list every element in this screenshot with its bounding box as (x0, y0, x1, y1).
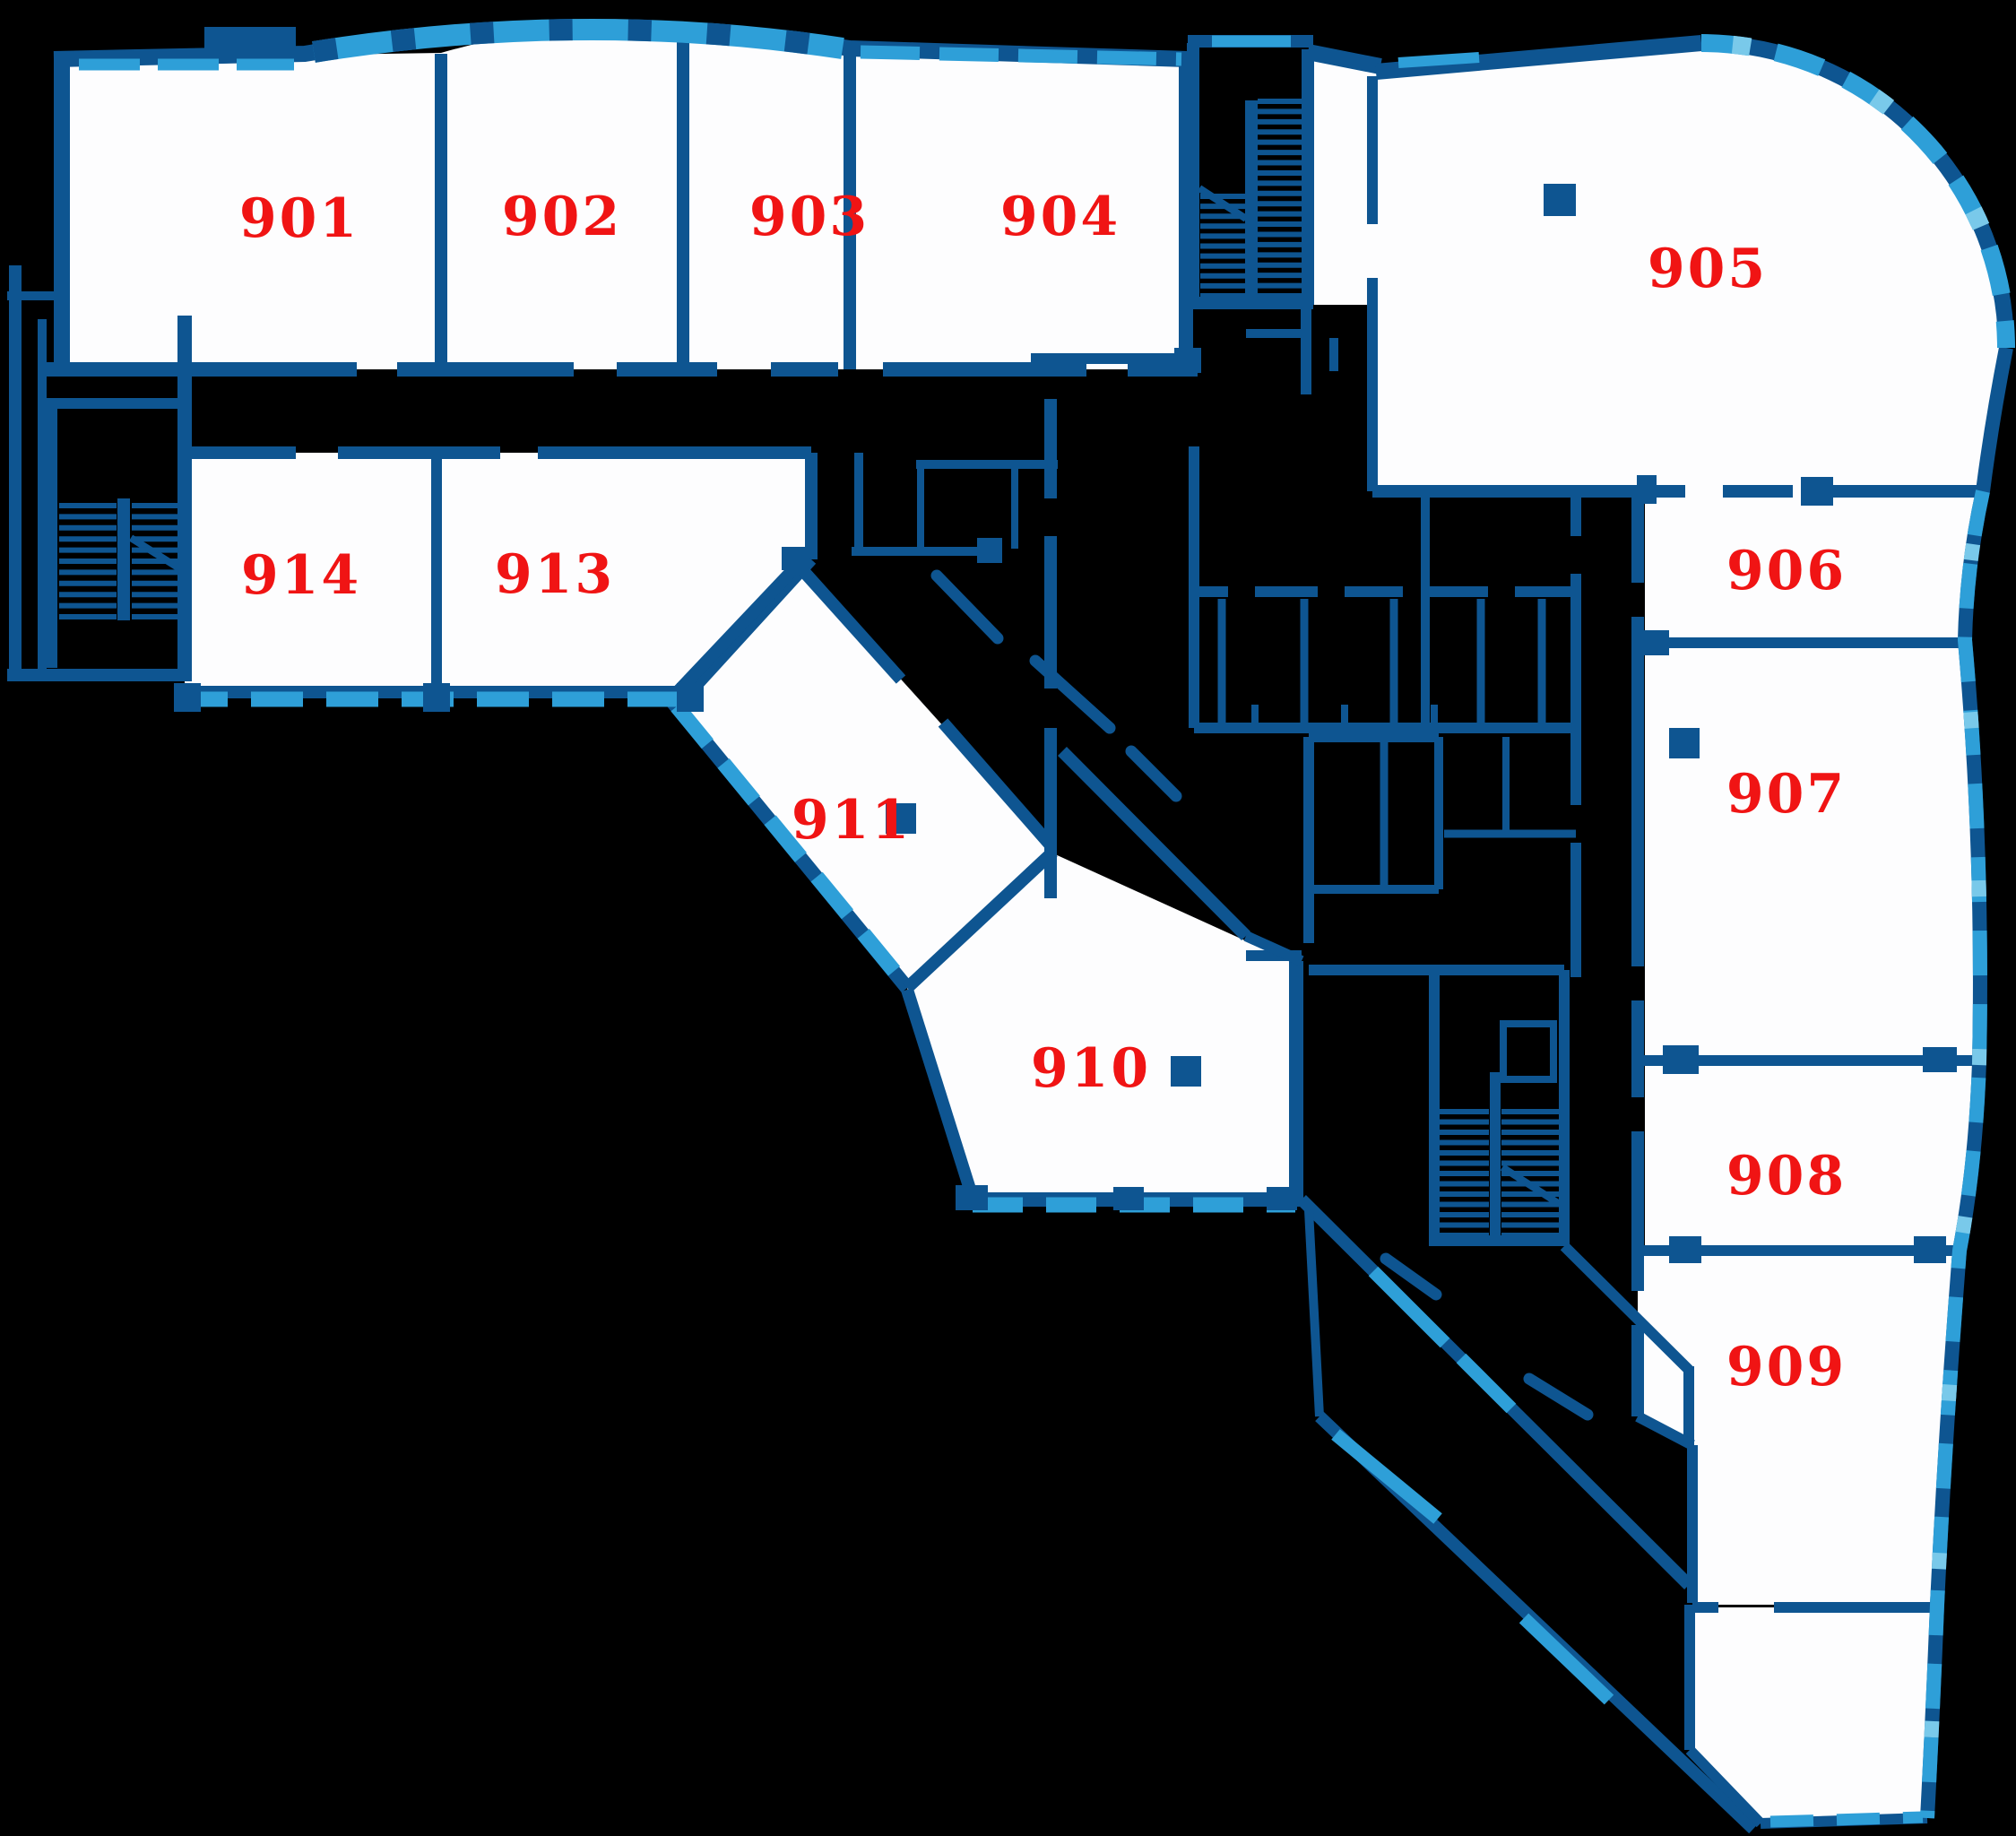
door-swing (1035, 661, 1110, 728)
room-905-label: 905 (1648, 238, 1768, 300)
room-902-label: 902 (502, 186, 622, 248)
room-908-label: 908 (1726, 1145, 1847, 1208)
floor-plan-svg: 901 902 903 904 905 906 907 908 909 910 … (0, 0, 2016, 1836)
parapet (204, 27, 296, 54)
room-907-label: 907 (1726, 763, 1847, 826)
door-swing (1529, 1379, 1588, 1415)
column (1669, 728, 1700, 758)
vestibule-floor (1308, 56, 1376, 305)
room-913-label: 913 (495, 543, 615, 606)
room-904-label: 904 (1000, 186, 1120, 248)
room-907-floor (1645, 643, 1980, 1061)
floor-plan-canvas: 901 902 903 904 905 906 907 908 909 910 … (0, 0, 2016, 1836)
column (1171, 1056, 1201, 1087)
room-909-label: 909 (1726, 1336, 1847, 1399)
room-903-label: 903 (749, 186, 870, 248)
room-910-label: 910 (1031, 1037, 1151, 1100)
room-901-label: 901 (239, 187, 359, 250)
west-stairwell (45, 403, 185, 668)
room-914-label: 914 (241, 544, 361, 607)
column (1544, 184, 1576, 216)
door-swing (1131, 751, 1176, 796)
room-906-label: 906 (1726, 540, 1847, 602)
room-911-label: 911 (792, 789, 912, 852)
door-swing (937, 576, 998, 638)
